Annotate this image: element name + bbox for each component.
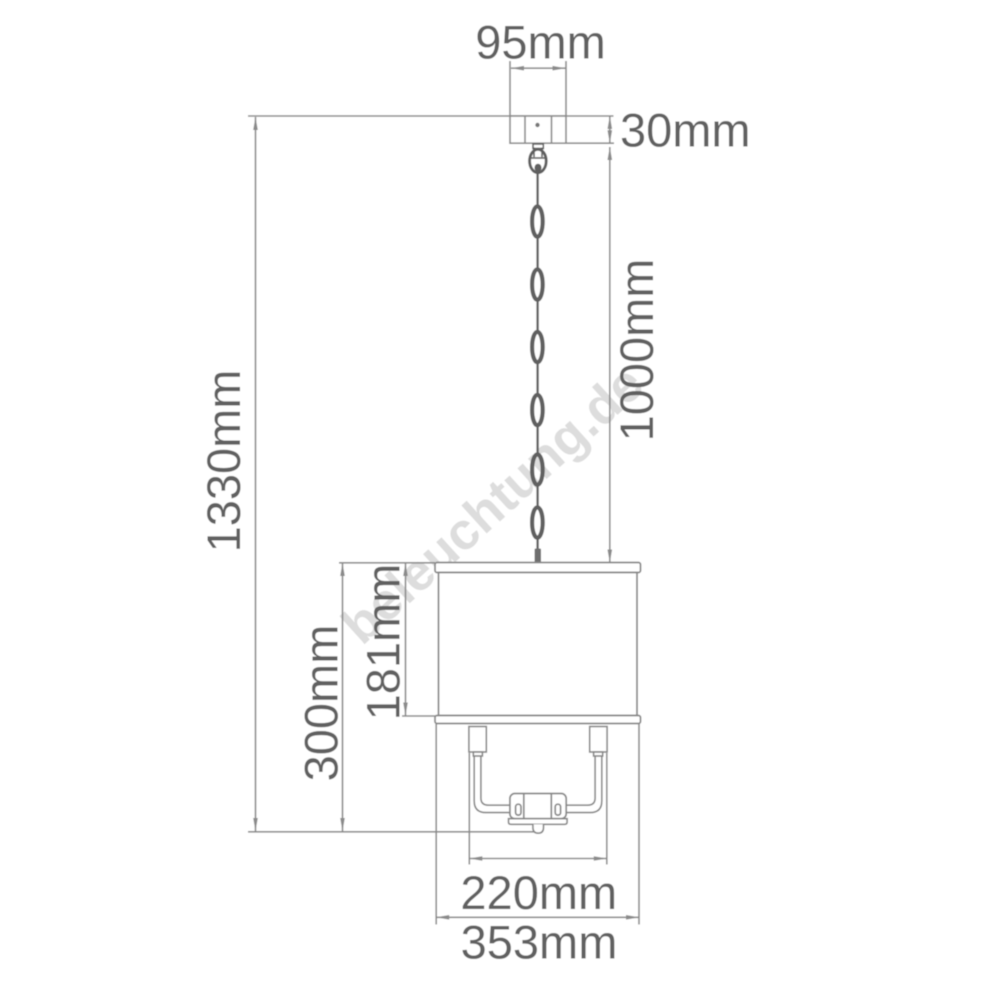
- svg-text:220mm: 220mm: [460, 866, 617, 919]
- svg-text:95mm: 95mm: [475, 16, 606, 69]
- svg-text:30mm: 30mm: [620, 104, 751, 157]
- svg-text:1330mm: 1330mm: [197, 370, 250, 553]
- svg-text:1000mm: 1000mm: [610, 259, 663, 442]
- svg-text:353mm: 353mm: [461, 915, 618, 968]
- svg-text:300mm: 300mm: [295, 625, 348, 782]
- svg-text:181mm: 181mm: [357, 564, 410, 721]
